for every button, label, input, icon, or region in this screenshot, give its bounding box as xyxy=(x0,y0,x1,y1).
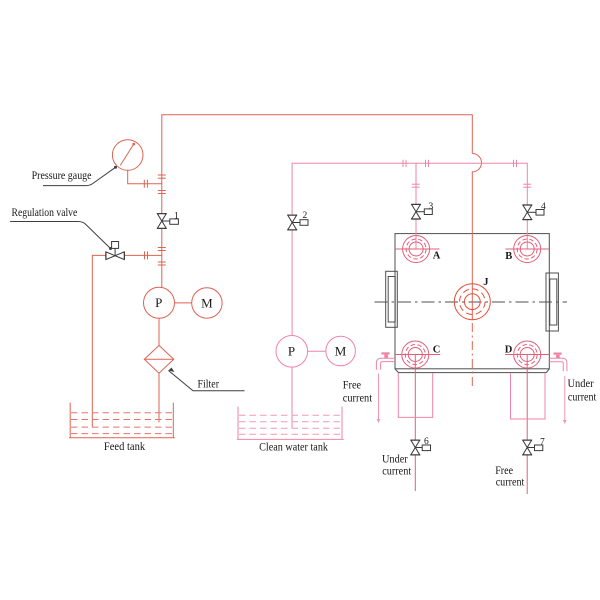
svg-text:Under: Under xyxy=(382,454,408,466)
svg-text:3: 3 xyxy=(429,202,434,212)
svg-text:Free: Free xyxy=(343,380,361,392)
svg-text:current: current xyxy=(382,466,412,478)
svg-text:7: 7 xyxy=(540,438,545,448)
svg-text:J: J xyxy=(483,277,488,288)
svg-text:current: current xyxy=(343,392,373,404)
svg-text:current: current xyxy=(568,392,597,404)
svg-text:Regulation valve: Regulation valve xyxy=(12,207,78,219)
svg-text:A: A xyxy=(433,251,441,262)
svg-text:1: 1 xyxy=(174,211,179,221)
svg-text:Free: Free xyxy=(495,465,513,477)
svg-text:B: B xyxy=(505,251,512,262)
svg-text:4: 4 xyxy=(541,202,546,212)
svg-text:P: P xyxy=(288,344,295,359)
svg-text:M: M xyxy=(201,295,213,310)
svg-text:Pressure gauge: Pressure gauge xyxy=(32,170,92,182)
svg-text:M: M xyxy=(335,343,347,358)
svg-text:2: 2 xyxy=(303,211,308,221)
svg-text:Clean water tank: Clean water tank xyxy=(259,442,328,454)
svg-text:Under: Under xyxy=(568,378,594,390)
svg-text:P: P xyxy=(155,295,162,310)
svg-text:D: D xyxy=(505,344,513,355)
svg-text:current: current xyxy=(496,477,525,489)
svg-text:C: C xyxy=(433,344,441,355)
svg-text:Feed tank: Feed tank xyxy=(104,441,145,453)
svg-text:Filter: Filter xyxy=(198,379,220,391)
svg-text:6: 6 xyxy=(424,437,429,447)
